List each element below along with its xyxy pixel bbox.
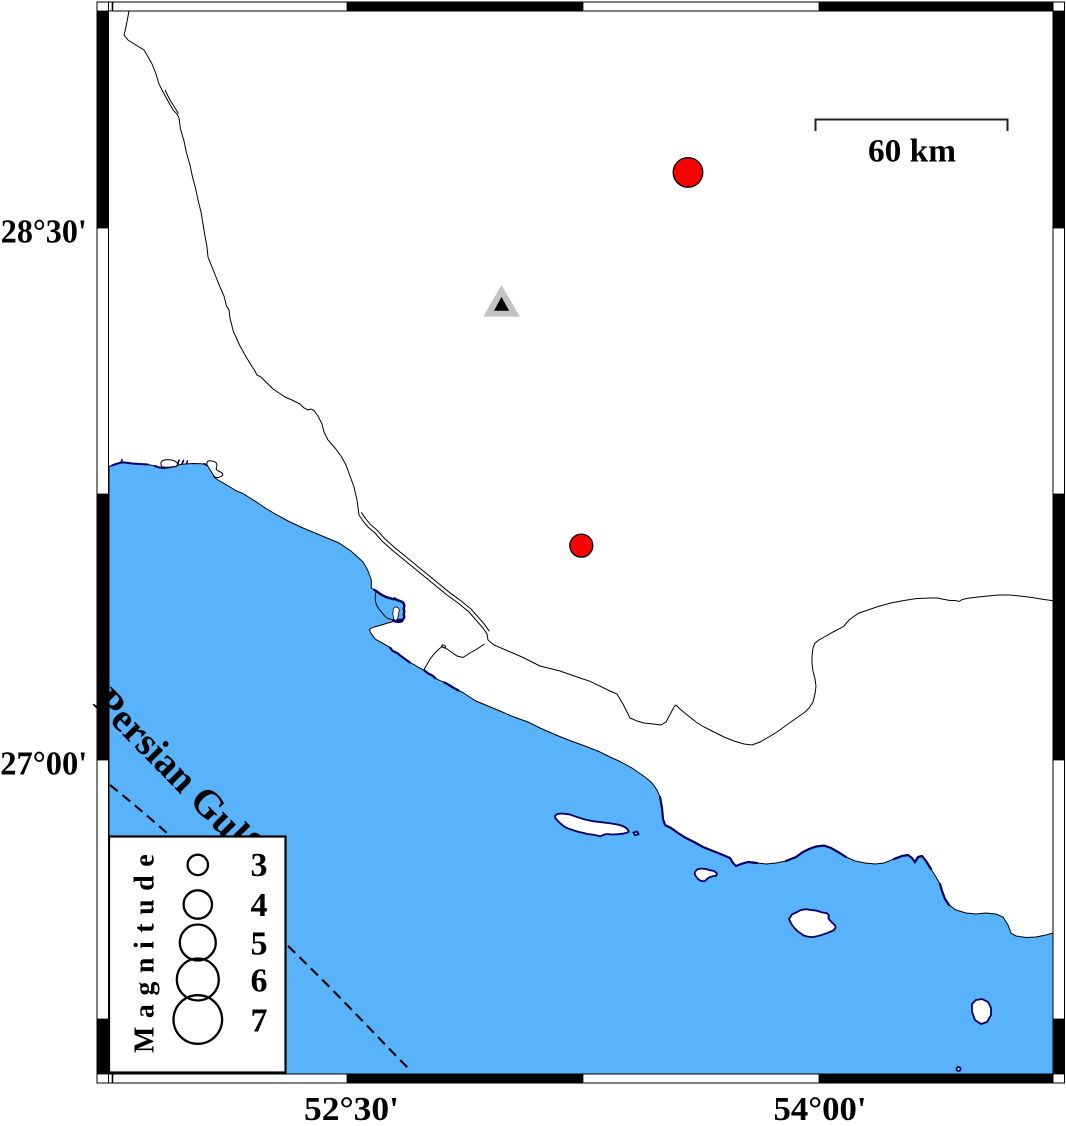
svg-text:4: 4 [251, 887, 268, 924]
svg-text:3: 3 [251, 847, 268, 884]
svg-text:27°00': 27°00' [0, 746, 87, 783]
svg-text:5: 5 [251, 925, 268, 962]
svg-text:6: 6 [251, 962, 268, 999]
svg-text:54°00': 54°00' [774, 1091, 867, 1121]
svg-text:Magnitude: Magnitude [129, 846, 160, 1053]
svg-text:60 km: 60 km [868, 134, 956, 170]
svg-text:52°30': 52°30' [304, 1091, 399, 1121]
svg-text:7: 7 [251, 1002, 268, 1039]
svg-text:28°30': 28°30' [1, 214, 87, 251]
